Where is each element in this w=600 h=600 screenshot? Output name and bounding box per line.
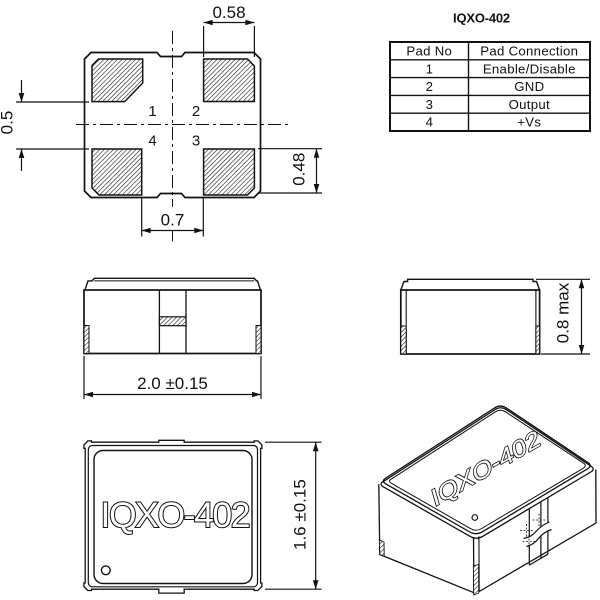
svg-text:0.5: 0.5: [0, 111, 17, 135]
svg-text:Enable/Disable: Enable/Disable: [483, 61, 576, 76]
svg-text:GND: GND: [514, 79, 544, 94]
svg-text:4: 4: [426, 115, 433, 130]
svg-text:IQXO-402: IQXO-402: [429, 425, 543, 512]
svg-text:1: 1: [148, 103, 156, 120]
svg-text:2.0 ±0.15: 2.0 ±0.15: [137, 374, 208, 393]
svg-text:0.8 max: 0.8 max: [554, 282, 573, 343]
svg-text:+Vs: +Vs: [517, 115, 541, 130]
svg-text:IQXO-402: IQXO-402: [453, 11, 510, 26]
svg-text:1.6 ±0.15: 1.6 ±0.15: [291, 479, 310, 550]
svg-text:Pad No: Pad No: [406, 44, 452, 59]
svg-text:Output: Output: [509, 97, 550, 112]
svg-text:0.58: 0.58: [212, 3, 245, 22]
svg-text:4: 4: [148, 133, 156, 150]
svg-text:2: 2: [192, 103, 200, 120]
svg-text:0.48: 0.48: [290, 153, 309, 186]
svg-text:1: 1: [426, 61, 433, 76]
svg-text:3: 3: [192, 133, 200, 150]
svg-text:2: 2: [426, 79, 433, 94]
svg-text:0.7: 0.7: [161, 211, 185, 230]
svg-text:Pad Connection: Pad Connection: [480, 44, 578, 59]
svg-text:IQXO-402: IQXO-402: [101, 495, 250, 535]
svg-text:3: 3: [426, 97, 433, 112]
